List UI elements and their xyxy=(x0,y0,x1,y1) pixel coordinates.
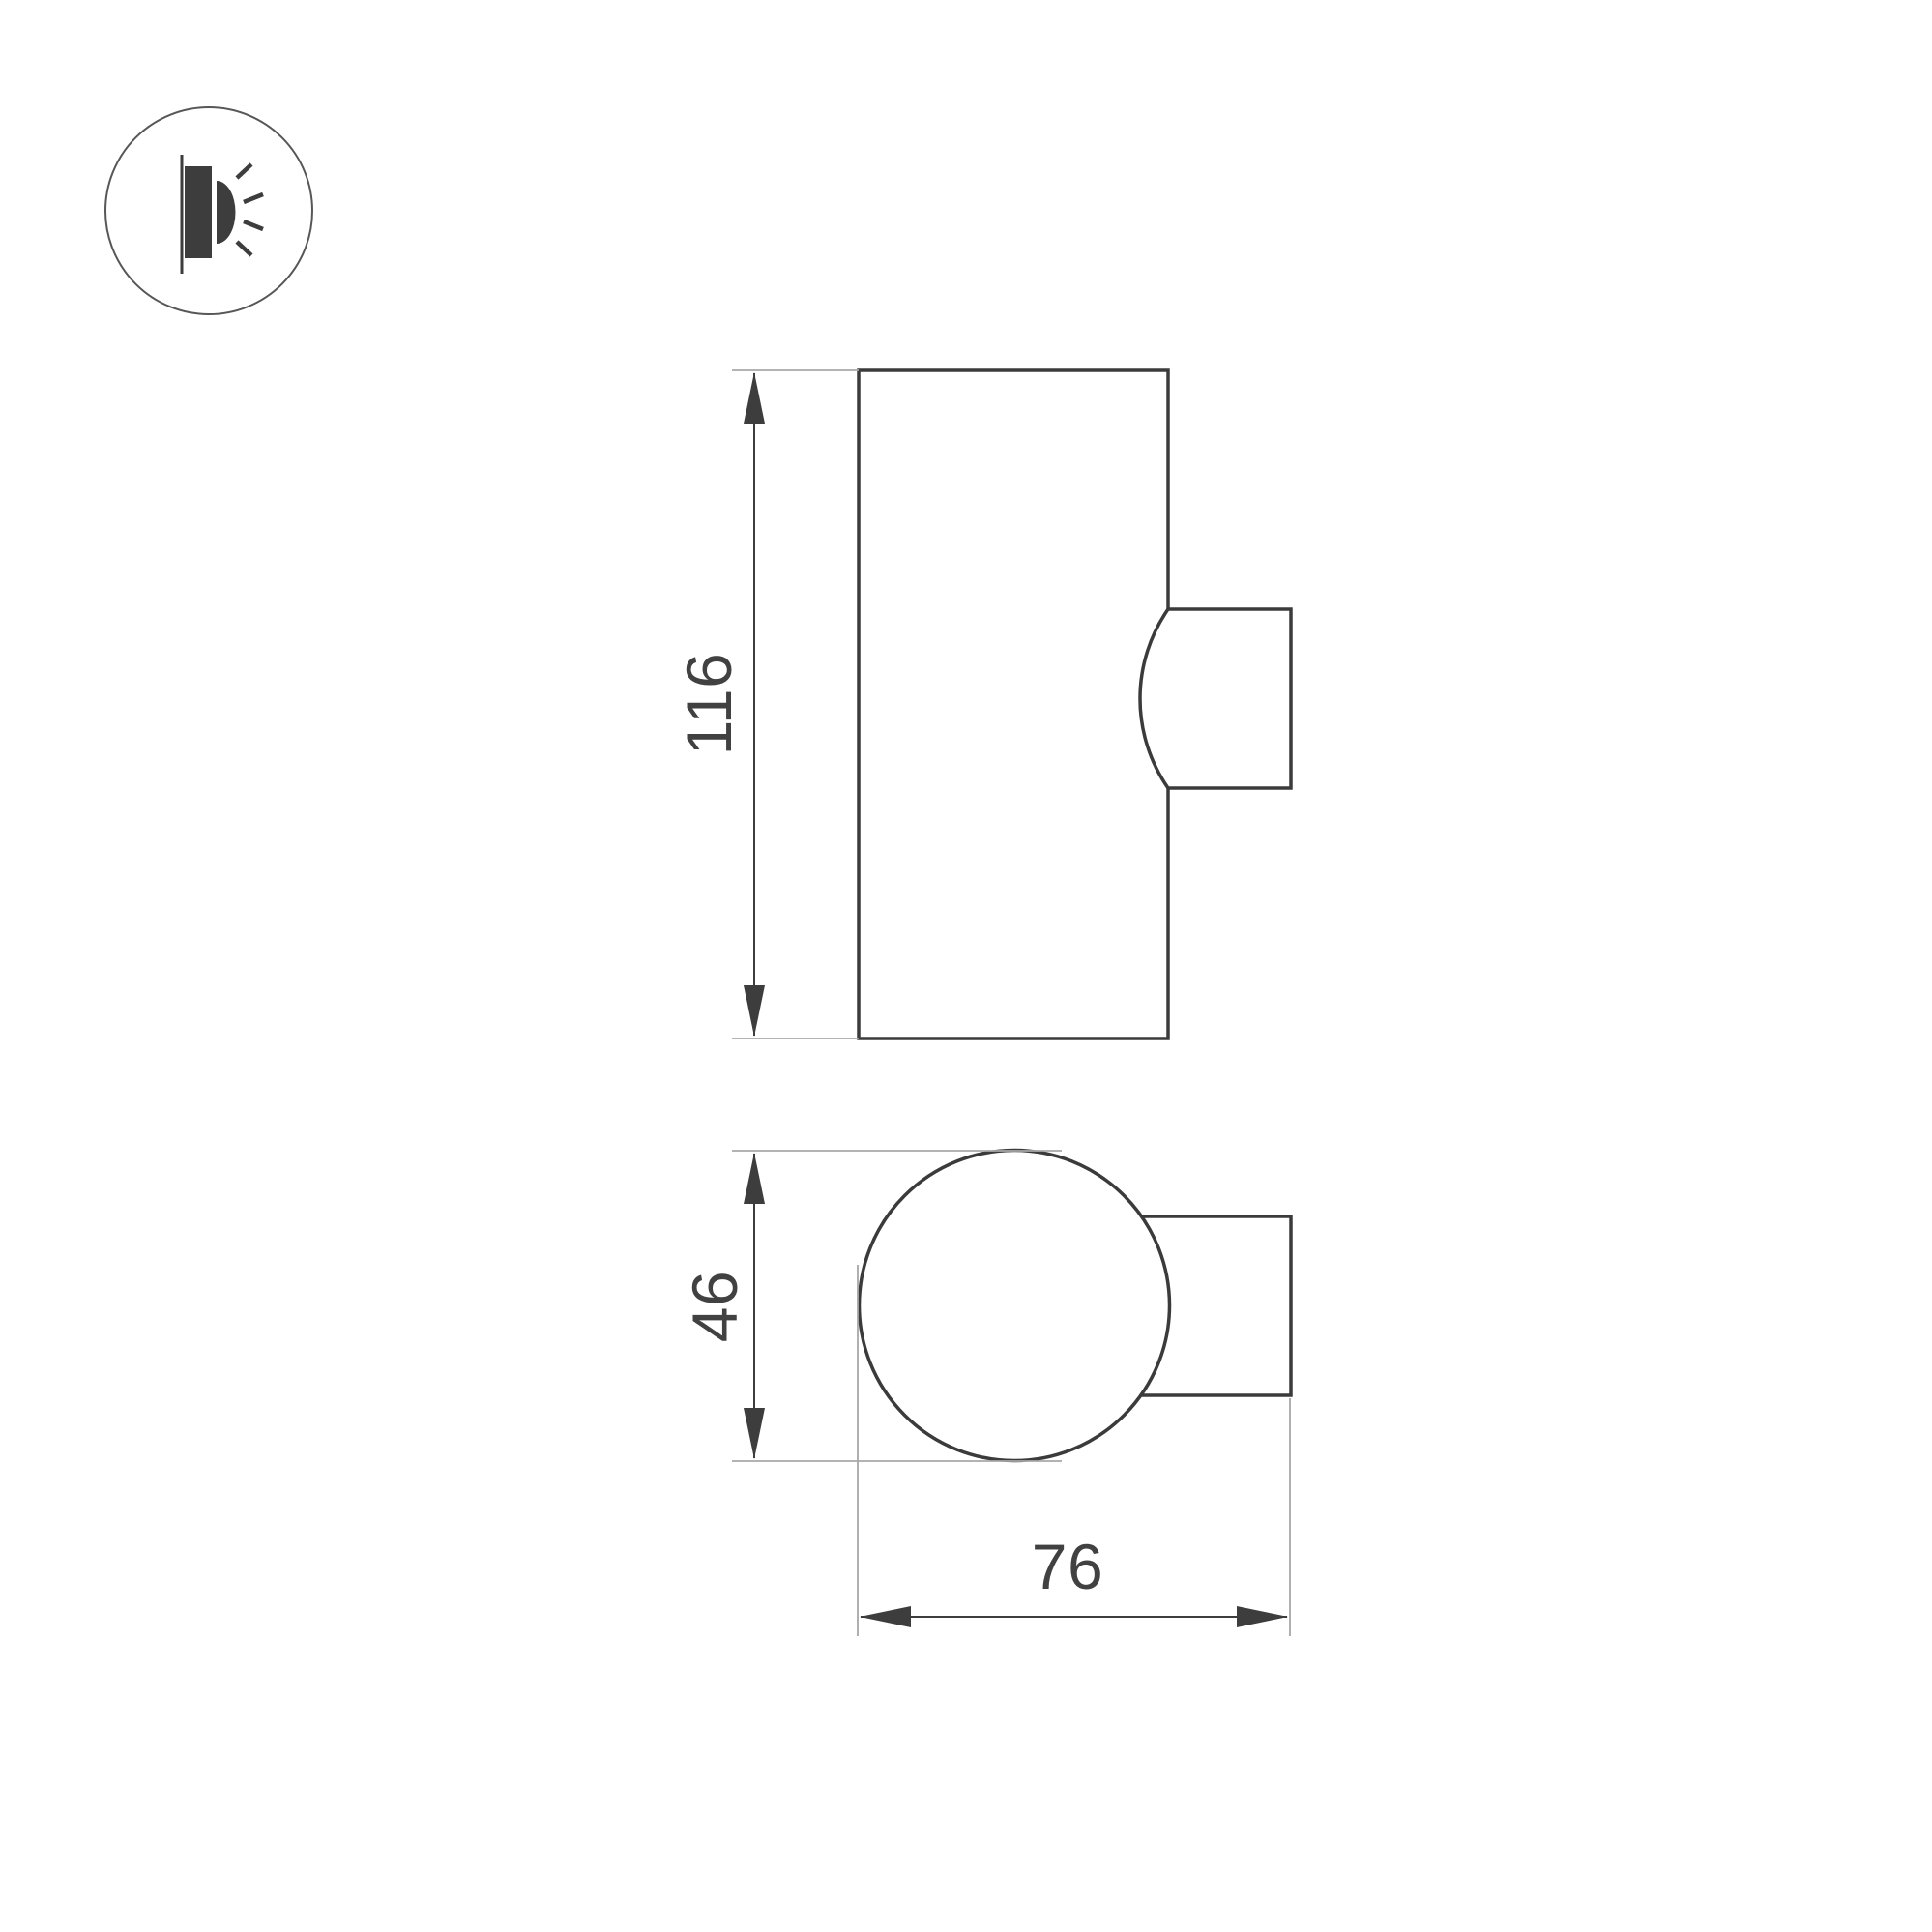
page: { "colors": { "background": "#ffffff", "… xyxy=(0,0,1932,1932)
arrowhead-right xyxy=(1237,1606,1288,1627)
dimension-label-height: 116 xyxy=(673,653,745,756)
arrowhead-down xyxy=(744,1408,765,1459)
arrowhead-left xyxy=(860,1606,911,1627)
technical-drawing: 116 46 76 xyxy=(0,0,1932,1932)
wall-light-badge xyxy=(105,107,312,314)
arrowhead-up xyxy=(744,1153,765,1204)
dimension-label-depth: 76 xyxy=(1032,1531,1103,1602)
lamp-body-top xyxy=(860,1151,1170,1461)
mount-bracket-top xyxy=(1141,1216,1291,1395)
arrowhead-up xyxy=(744,372,765,424)
lamp-body xyxy=(185,166,212,258)
top-view xyxy=(860,1151,1292,1461)
mount-bracket-front xyxy=(1140,609,1291,788)
dimension-height: 116 xyxy=(673,370,859,1039)
front-view xyxy=(859,370,1291,1039)
arrowhead-down xyxy=(744,985,765,1037)
dimension-diameter: 46 xyxy=(679,1151,1062,1461)
lamp-body-front xyxy=(859,370,1168,1039)
dimension-label-diameter: 46 xyxy=(679,1271,750,1342)
